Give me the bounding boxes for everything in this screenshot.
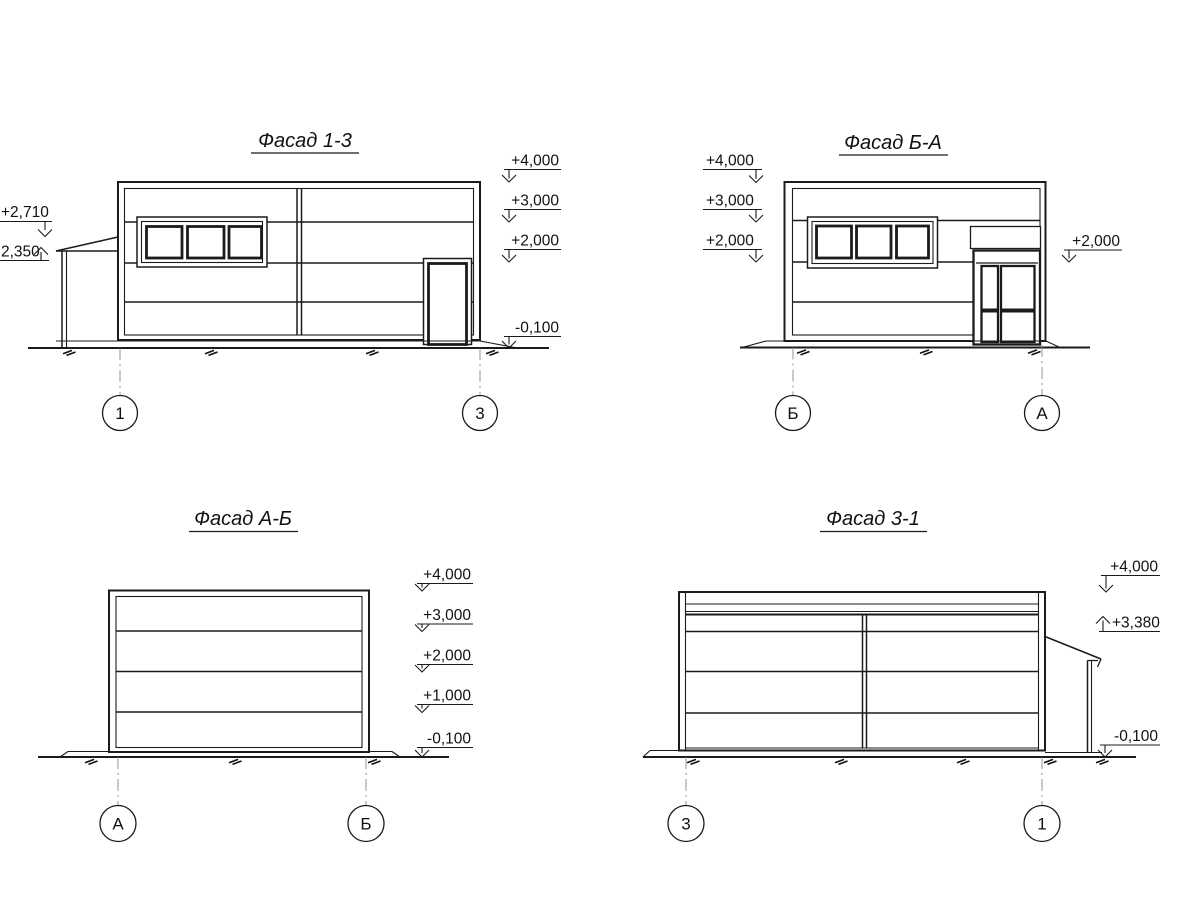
facade-b-a-marks-left: +4,000 +3,000 +2,000 [703,153,763,263]
facade-a-b-ground [38,752,449,765]
facade-a-b-title: Фасад А-Б [194,508,292,530]
elevation-mark-fab-4000: +4,000 [415,567,473,592]
facade-a-b-building [109,591,369,753]
facade-1-3: Фасад 1-3 [0,130,561,431]
facade-1-3-door [424,259,472,345]
elevation-value: +3,380 [1112,615,1160,632]
facade-1-3-title: Фасад 1-3 [258,130,352,152]
elevation-mark-f13-4000: +4,000 [502,153,561,183]
axis-label-b: Б [787,404,798,423]
facade-b-a-title: Фасад Б-А [844,132,942,154]
elevation-value: +1,000 [423,688,471,705]
facade-a-b-marks-right: +4,000 +3,000 +2,000 +1,000 -0,100 [415,567,473,758]
elevation-value: +2,000 [706,233,754,250]
elevation-value: +2,000 [511,233,559,250]
facades-drawing: Фасад 1-3 [0,0,1200,900]
elevation-value: 2,350 [1,244,40,261]
facade-3-1-building [679,592,1045,751]
facade-1-3-marks-left: +2,710 2,350 [0,204,52,261]
facade-b-a-door-portal [971,227,1041,249]
elevation-mark-f13-neg0100: -0,100 [502,320,561,349]
elevation-mark-fba-3000: +3,000 [703,193,763,223]
elevation-value: +3,000 [706,193,754,210]
elevation-mark-f31-4000: +4,000 [1099,559,1160,593]
elevation-value: +3,000 [423,607,471,624]
elevation-mark-f31-3380: +3,380 [1096,615,1160,632]
elevation-mark-fba-2000-left: +2,000 [703,233,763,263]
elevation-mark-fab-neg0100: -0,100 [415,731,473,758]
elevation-mark-f13-2350: 2,350 [0,244,49,261]
elevation-value: +4,000 [511,153,559,170]
axis-label-3b: 3 [681,815,690,834]
elevation-mark-fba-2000-right: +2,000 [1062,233,1122,262]
elevation-value: +3,000 [511,193,559,210]
elevation-mark-fba-4000: +4,000 [703,153,763,183]
axis-label-a: А [1036,404,1048,423]
elevation-value: +4,000 [423,567,471,584]
facade-b-a-axes: Б А [776,345,1060,431]
facade-3-1-title: Фасад 3-1 [826,508,920,530]
facade-1-3-marks-right: +4,000 +3,000 +2,000 -0,100 [502,153,561,349]
facade-3-1-marks-right: +4,000 +3,380 -0,100 [1096,559,1160,758]
facade-1-3-axes: 1 3 [103,348,498,431]
elevation-mark-f13-2000: +2,000 [502,233,561,263]
axis-label-1b: 1 [1037,815,1046,834]
elevation-value: +2,000 [1072,233,1120,250]
facade-a-b-axes: А Б [100,757,384,842]
facade-3-1-ground [643,751,1136,765]
facade-b-a-window [808,217,938,268]
elevation-mark-fab-1000: +1,000 [415,688,473,713]
elevation-value: +4,000 [1110,559,1158,576]
axis-label-b2: Б [360,815,371,834]
facade-1-3-annex [56,237,118,347]
facade-b-a-door [974,251,1041,345]
elevation-mark-f13-3000: +3,000 [502,193,561,223]
elevation-value: +2,000 [423,648,471,665]
facade-3-1-axes: 3 1 [668,757,1060,842]
elevation-value: -0,100 [1114,728,1158,745]
facade-3-1-annex [1045,637,1101,754]
elevation-value: -0,100 [427,731,471,748]
facade-3-1: Фасад 3-1 [643,508,1160,842]
axis-label-1: 1 [115,404,124,423]
facade-b-a-marks-right: +2,000 [1062,233,1122,262]
elevation-mark-f31-neg0100: -0,100 [1098,728,1160,757]
elevation-value: -0,100 [515,320,559,337]
facade-1-3-window [137,217,267,267]
elevation-mark-f13-2710: +2,710 [0,204,52,237]
elevation-mark-fab-2000: +2,000 [415,648,473,673]
elevation-mark-fab-3000: +3,000 [415,607,473,632]
elevation-value: +4,000 [706,153,754,170]
elevation-value: +2,710 [1,204,49,221]
axis-label-a2: А [112,815,124,834]
facade-b-a: Фасад Б-А [703,132,1122,431]
drawing-canvas: Фасад 1-3 [0,0,1200,900]
facade-a-b: Фасад А-Б А Б +4, [38,508,473,842]
axis-label-3: 3 [475,404,484,423]
